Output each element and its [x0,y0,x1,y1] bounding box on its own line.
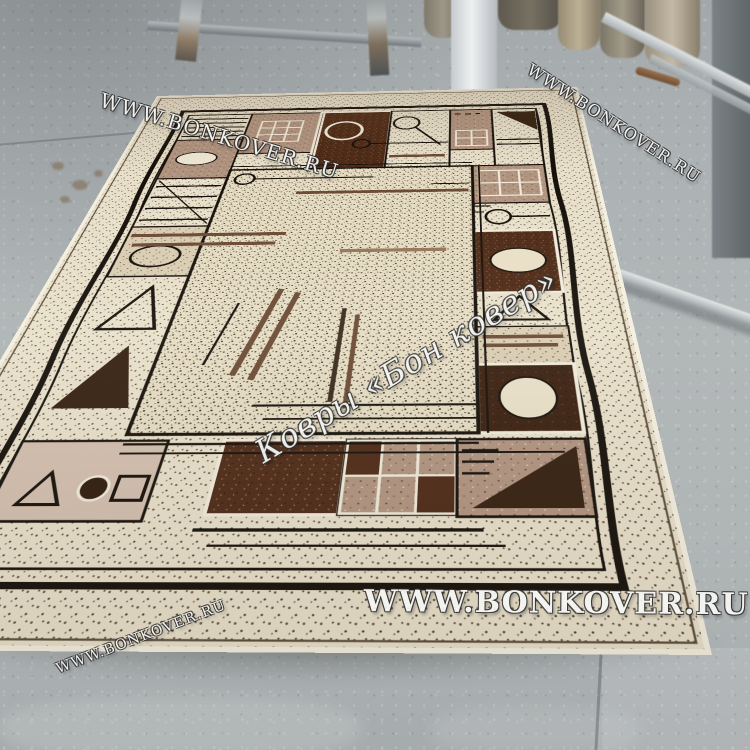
trestle-leg-right [366,0,389,76]
rug-product-photo: WWW.BONKOVER.RU WWW.BONKOVER.RU Ковры «Б… [0,0,750,750]
stored-carpet-roll [558,0,600,50]
floor-stain [72,180,88,190]
floor-stain [94,170,103,177]
stored-carpet-roll [498,0,562,30]
floor-stain [52,162,64,170]
floor-stain [60,196,70,203]
wall-panel [712,0,750,258]
floor-paint-patch [0,698,360,750]
watermark-url-bottom: WWW.BONKOVER.RU [364,584,749,622]
